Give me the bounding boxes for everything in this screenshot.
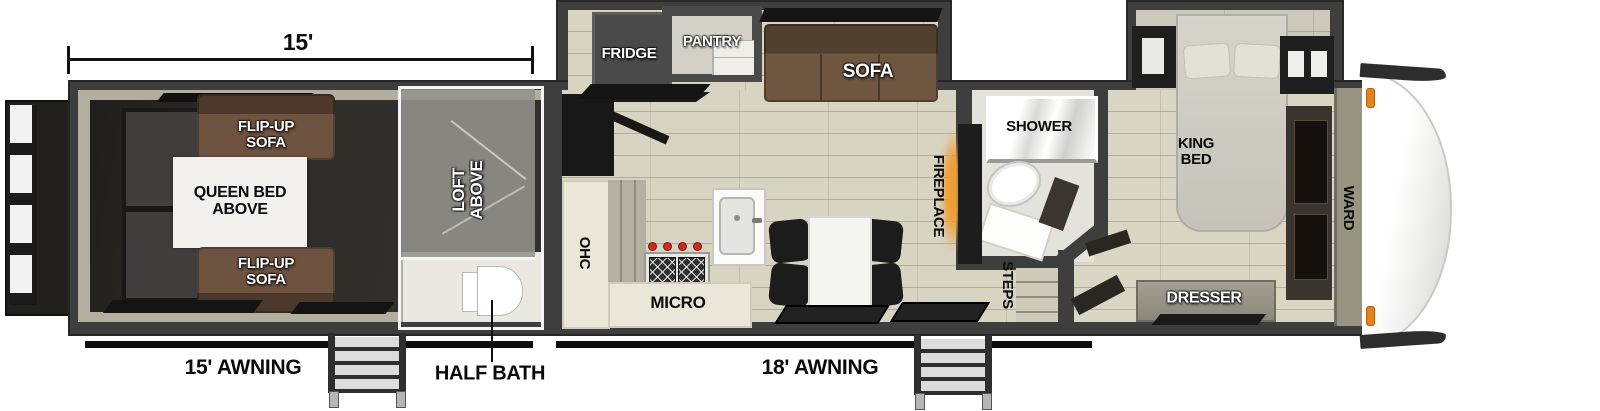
stove-knob bbox=[663, 242, 672, 251]
step-rail bbox=[328, 333, 335, 393]
window-pane bbox=[1288, 51, 1304, 77]
half-bath-leader bbox=[491, 300, 493, 362]
entertainment-center bbox=[562, 94, 614, 176]
sofa-window-strip bbox=[759, 8, 942, 22]
pillow-left bbox=[1183, 42, 1231, 79]
rv-floor-plan: 15' FLIP-UP SOFA QUEEN BED ABOVE FLIP-UP… bbox=[0, 0, 1600, 411]
stove-knob bbox=[693, 242, 702, 251]
ohc-label: OHC bbox=[576, 237, 592, 269]
dimension-label: 15' bbox=[283, 30, 313, 54]
entry-steps-garage bbox=[328, 333, 406, 407]
steps-area bbox=[1016, 268, 1058, 322]
dinette-chair-2 bbox=[768, 262, 812, 308]
dinette-chair-1 bbox=[768, 218, 812, 264]
sink-counter bbox=[712, 188, 766, 266]
awning-rear-line bbox=[85, 341, 533, 348]
marker-light-bottom bbox=[1366, 306, 1375, 326]
fridge-label: FRIDGE bbox=[602, 46, 657, 62]
steps-wall bbox=[1058, 250, 1074, 332]
garage-floor-mat-left bbox=[103, 300, 263, 313]
front-cap bbox=[1362, 72, 1452, 346]
flip-up-sofa-top-label: FLIP-UP SOFA bbox=[238, 119, 294, 151]
dresser-mat bbox=[1152, 314, 1267, 325]
bedroom-window-left bbox=[1132, 26, 1176, 88]
step-foot bbox=[396, 391, 406, 408]
stove-knobs bbox=[648, 242, 706, 251]
sofa-seam-1 bbox=[820, 54, 822, 100]
step-rail bbox=[914, 335, 921, 395]
sink-faucet bbox=[752, 218, 762, 223]
pantry-label: PANTRY bbox=[683, 34, 741, 50]
stove-knob bbox=[648, 242, 657, 251]
king-bed-label: KING BED bbox=[1178, 136, 1214, 168]
bedroom-window-right bbox=[1280, 36, 1334, 94]
window-pane bbox=[1142, 38, 1164, 74]
fridge-shadow bbox=[577, 84, 711, 99]
steps-label: STEPS bbox=[999, 261, 1015, 309]
fireplace-label: FIREPLACE bbox=[930, 155, 946, 237]
window-pane bbox=[1311, 51, 1327, 77]
cabinet-opening-bottom bbox=[1294, 214, 1328, 280]
step-treads bbox=[335, 337, 399, 393]
dimension-tick-left bbox=[67, 46, 70, 74]
dresser-label: DRESSER bbox=[1166, 291, 1241, 308]
loft-label: LOFT ABOVE bbox=[450, 161, 486, 220]
step-treads bbox=[921, 339, 985, 395]
shower-label: SHOWER bbox=[1006, 119, 1072, 135]
pantry-shelf-line bbox=[714, 57, 754, 58]
awning-main-line bbox=[556, 341, 1092, 348]
step-foot bbox=[915, 393, 925, 410]
pillow-right bbox=[1233, 43, 1281, 79]
garage-floor-mat-right bbox=[290, 302, 394, 314]
step-rail bbox=[985, 335, 992, 395]
floor-mat-dinette bbox=[774, 305, 890, 324]
entry-steps-main bbox=[914, 335, 992, 409]
awning-rear-label: 15' AWNING bbox=[185, 357, 302, 379]
awning-main-label: 18' AWNING bbox=[762, 357, 879, 379]
step-foot bbox=[982, 393, 992, 410]
marker-light-top bbox=[1366, 88, 1375, 108]
ramp-rails bbox=[10, 105, 37, 305]
wardrobe-label: WARD bbox=[1340, 186, 1356, 231]
sink-basin bbox=[719, 197, 755, 255]
sofa-label: SOFA bbox=[843, 62, 894, 82]
half-bath-label: HALF BATH bbox=[435, 363, 545, 384]
stove-knob bbox=[678, 242, 687, 251]
micro-label: MICRO bbox=[650, 294, 705, 312]
dimension-line bbox=[68, 58, 534, 61]
sink-drain bbox=[734, 215, 740, 221]
step-rail bbox=[399, 333, 406, 393]
fireplace-panel bbox=[958, 124, 982, 264]
cabinet-opening-top bbox=[1294, 120, 1328, 204]
dimension-tick-right bbox=[531, 46, 534, 74]
step-foot bbox=[329, 391, 339, 408]
dinette-table bbox=[808, 216, 872, 316]
queen-bed-label: QUEEN BED ABOVE bbox=[194, 185, 286, 219]
bedroom-tv-cabinet bbox=[1286, 106, 1332, 300]
floor-mat-entry bbox=[890, 302, 990, 322]
flip-up-sofa-bottom-label: FLIP-UP SOFA bbox=[238, 256, 294, 288]
